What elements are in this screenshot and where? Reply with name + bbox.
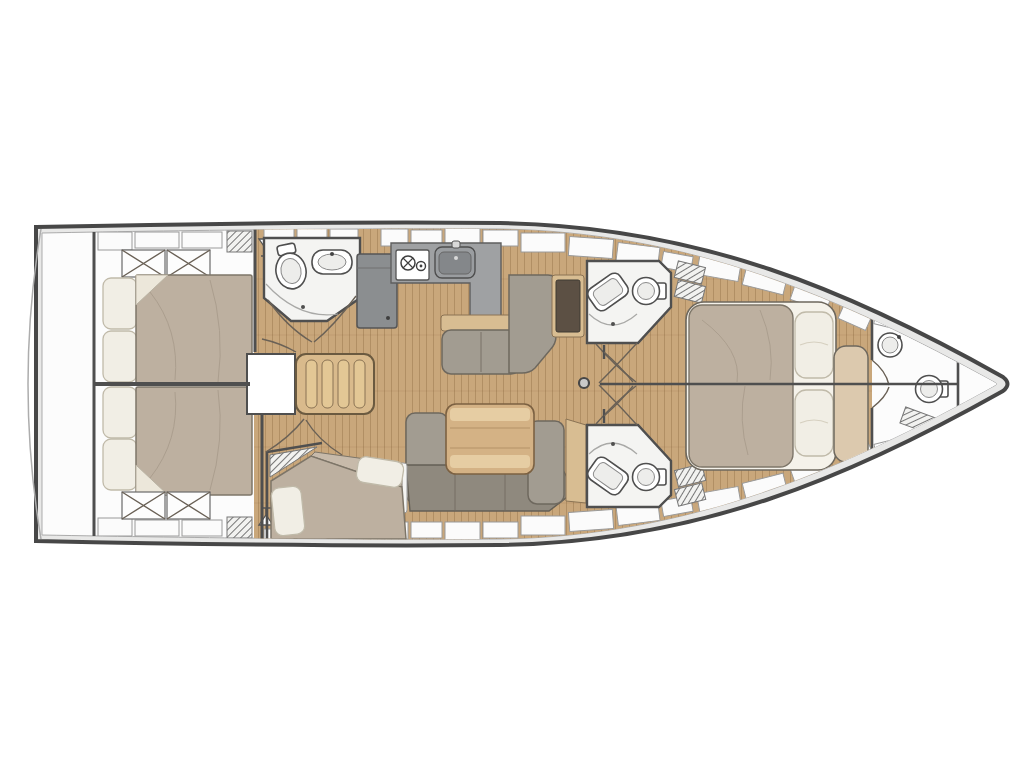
deck-locker [568,236,613,258]
sink-icon [878,333,902,357]
deck-locker [521,233,565,252]
deck-locker [135,520,179,536]
step [322,360,333,408]
deck-locker [483,522,518,538]
vent-grille [227,517,252,538]
mast-post [579,378,589,388]
deck-locker [182,232,222,248]
shower-drain [611,322,615,326]
owner-bench [834,346,868,462]
deck-locker [135,232,179,248]
companionway-box [247,354,295,414]
shower-drain [611,442,615,446]
deck-locker [182,520,222,536]
double-bed [136,275,252,385]
fridge-handle [386,316,390,320]
sink-icon [312,250,352,274]
deck-locker [568,509,613,531]
sofa-back-shelf [441,315,519,331]
page [0,0,1024,768]
dinette-wood-trim [566,419,586,503]
deck-locker [98,232,132,250]
stove-icon [396,250,429,280]
pillow [103,387,137,438]
chart-table-top [556,280,580,332]
pillow [103,439,137,490]
pillow [271,486,306,537]
vent-grille [227,231,252,252]
step [306,360,317,408]
deck-locker [411,522,442,538]
yacht-floor-plan [0,0,1024,768]
deck-locker [98,518,132,536]
island-double-bed [689,305,793,467]
table-leaf [450,408,530,421]
step [338,360,349,408]
table-leaf [450,455,530,468]
double-bed [136,387,252,495]
deck-locker [445,522,480,540]
pillow [103,331,137,382]
shower-drain [301,305,305,309]
pillow [103,278,137,329]
deck-locker [521,516,565,535]
galley-sink-icon [435,241,475,278]
step [354,360,365,408]
